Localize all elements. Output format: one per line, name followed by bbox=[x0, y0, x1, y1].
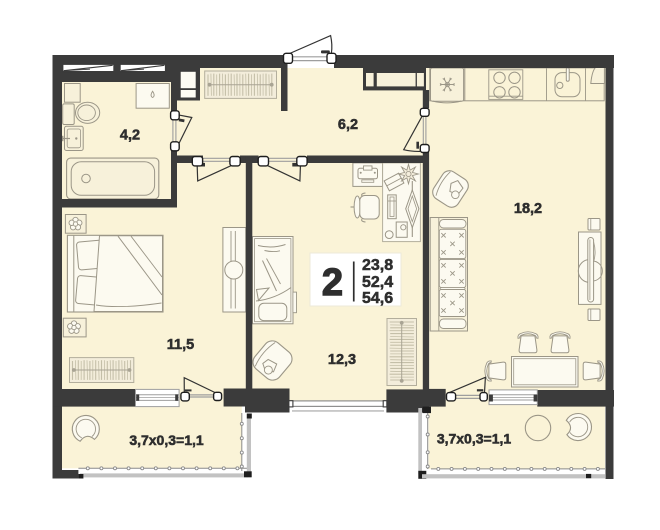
svg-text:3,7x0,3=1,1: 3,7x0,3=1,1 bbox=[437, 431, 512, 447]
svg-text:11,5: 11,5 bbox=[167, 337, 194, 353]
svg-text:3,7x0,3=1,1: 3,7x0,3=1,1 bbox=[129, 432, 204, 448]
svg-text:12,3: 12,3 bbox=[328, 352, 356, 368]
svg-text:2: 2 bbox=[322, 262, 343, 304]
svg-text:18,2: 18,2 bbox=[514, 201, 542, 217]
svg-text:54,6: 54,6 bbox=[362, 290, 393, 307]
svg-text:6,2: 6,2 bbox=[338, 117, 358, 133]
svg-text:52,4: 52,4 bbox=[362, 274, 393, 291]
svg-text:4,2: 4,2 bbox=[120, 127, 140, 143]
svg-text:23,8: 23,8 bbox=[362, 257, 393, 274]
